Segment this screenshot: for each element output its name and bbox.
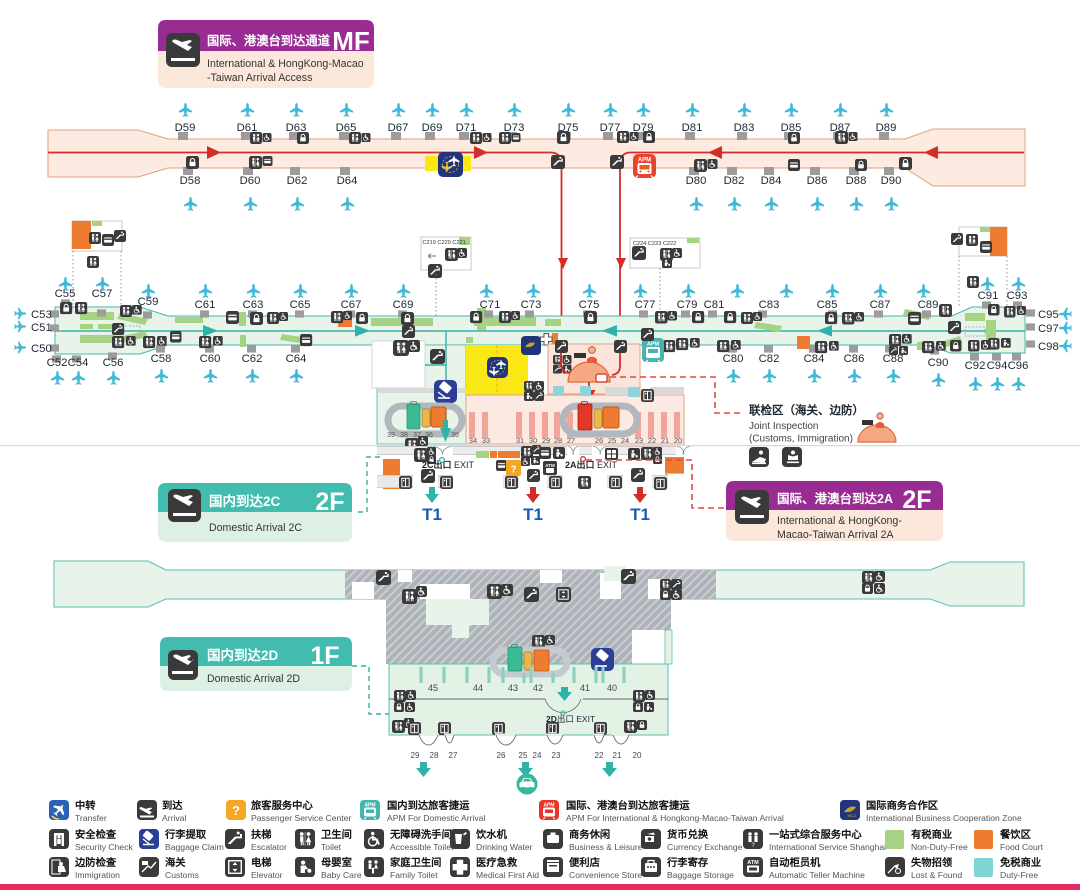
svg-text:C87: C87 — [870, 299, 891, 311]
svg-text:国内到达2C: 国内到达2C — [209, 493, 281, 509]
svg-text:无障碍洗手间: 无障碍洗手间 — [389, 828, 452, 841]
svg-text:Duty-Free: Duty-Free — [1000, 870, 1038, 880]
svg-text:International & HongKong-: International & HongKong- — [777, 515, 902, 527]
svg-text:国际商务合作区: 国际商务合作区 — [866, 799, 939, 812]
svg-text:C85: C85 — [817, 299, 838, 311]
svg-text:扶梯: 扶梯 — [251, 828, 272, 841]
svg-text:Elevator: Elevator — [251, 870, 283, 880]
svg-text:Arrival: Arrival — [162, 813, 186, 823]
svg-text:30: 30 — [529, 436, 537, 445]
svg-text:43: 43 — [508, 683, 518, 693]
svg-text:C84: C84 — [804, 353, 825, 365]
svg-text:D69: D69 — [422, 122, 443, 134]
svg-text:C91: C91 — [978, 290, 999, 302]
svg-text:D88: D88 — [846, 175, 867, 187]
svg-text:MF: MF — [332, 26, 370, 56]
svg-text:C65: C65 — [290, 299, 311, 311]
svg-text:2F: 2F — [315, 488, 344, 516]
svg-text:20: 20 — [633, 751, 642, 760]
svg-text:20: 20 — [674, 436, 682, 445]
svg-text:行李提取: 行李提取 — [164, 828, 207, 841]
svg-text:Joint Inspection: Joint Inspection — [749, 421, 819, 432]
svg-text:IBCZ: IBCZ — [847, 813, 857, 818]
svg-text:?: ? — [510, 465, 516, 476]
svg-text:23: 23 — [635, 436, 643, 445]
svg-text:D90: D90 — [881, 175, 902, 187]
svg-text:D62: D62 — [287, 175, 308, 187]
svg-text:APM For Domestic Arrival: APM For Domestic Arrival — [387, 813, 485, 823]
svg-text:D89: D89 — [876, 122, 897, 134]
svg-text:D80: D80 — [686, 175, 707, 187]
svg-text:Baggage Storage: Baggage Storage — [667, 870, 734, 880]
svg-text:22: 22 — [648, 436, 656, 445]
svg-text:C98: C98 — [1038, 341, 1059, 353]
svg-text:(Customs, Immigration): (Customs, Immigration) — [749, 434, 853, 445]
svg-text:40: 40 — [607, 683, 617, 693]
svg-text:C58: C58 — [151, 353, 172, 365]
svg-text:International Service Shanghai: International Service Shanghai — [769, 842, 886, 852]
svg-text:D67: D67 — [388, 122, 409, 134]
svg-text:29: 29 — [542, 436, 550, 445]
svg-text:C61: C61 — [195, 299, 216, 311]
svg-text:29: 29 — [411, 751, 420, 760]
svg-text:C81: C81 — [704, 299, 725, 311]
svg-text:Macao-Taiwan Arrival 2A: Macao-Taiwan Arrival 2A — [777, 529, 895, 541]
svg-text:26: 26 — [497, 751, 506, 760]
svg-text:C94: C94 — [987, 360, 1008, 372]
svg-text:C67: C67 — [341, 299, 362, 311]
svg-text:C54: C54 — [68, 357, 89, 369]
svg-text:-Taiwan Arrival Access: -Taiwan Arrival Access — [207, 72, 312, 84]
svg-text:ATM: ATM — [747, 860, 759, 866]
svg-text:电梯: 电梯 — [251, 856, 272, 869]
svg-text:C56: C56 — [103, 357, 124, 369]
svg-text:Automatic Teller Machine: Automatic Teller Machine — [769, 870, 865, 880]
svg-text:国际、港澳台到达旅客捷运: 国际、港澳台到达旅客捷运 — [566, 799, 690, 812]
svg-text:联检区（海关、边防）: 联检区（海关、边防） — [749, 403, 864, 417]
svg-text:21: 21 — [661, 436, 669, 445]
svg-text:C89: C89 — [918, 299, 939, 311]
svg-text:27: 27 — [449, 751, 458, 760]
svg-text:C80: C80 — [723, 353, 744, 365]
svg-text:Baggage Claim: Baggage Claim — [165, 842, 224, 852]
svg-text:D82: D82 — [724, 175, 745, 187]
svg-text:31: 31 — [516, 436, 524, 445]
svg-text:C95: C95 — [1038, 309, 1059, 321]
svg-text:C93: C93 — [1007, 290, 1028, 302]
svg-text:35: 35 — [451, 432, 459, 439]
svg-text:到达: 到达 — [162, 799, 183, 812]
svg-text:28: 28 — [554, 436, 562, 445]
svg-text:C73: C73 — [521, 299, 542, 311]
svg-text:Non-Duty-Free: Non-Duty-Free — [911, 842, 968, 852]
svg-text:C60: C60 — [200, 353, 221, 365]
svg-text:C50: C50 — [31, 343, 52, 355]
svg-text:餐饮区: 餐饮区 — [999, 828, 1032, 841]
svg-text:C97: C97 — [1038, 323, 1059, 335]
svg-text:货币兑换: 货币兑换 — [667, 828, 709, 841]
svg-text:C92: C92 — [965, 360, 986, 372]
svg-text:Passenger Service Center: Passenger Service Center — [251, 813, 351, 823]
svg-text:失物招领: 失物招领 — [911, 856, 953, 869]
svg-text:Baby Care: Baby Care — [321, 870, 362, 880]
svg-text:便利店: 便利店 — [569, 856, 600, 869]
svg-text:饮水机: 饮水机 — [475, 828, 508, 841]
svg-text:家庭卫生间: 家庭卫生间 — [390, 856, 441, 869]
svg-text:D77: D77 — [600, 122, 621, 134]
svg-text:2F: 2F — [902, 486, 931, 514]
svg-text:母婴室: 母婴室 — [321, 856, 352, 869]
svg-text:44: 44 — [473, 683, 483, 693]
svg-text:Domestic Arrival 2D: Domestic Arrival 2D — [207, 673, 300, 685]
svg-text:Immigration: Immigration — [75, 870, 120, 880]
svg-text:免税商业: 免税商业 — [1000, 856, 1041, 869]
svg-text:APM For International & Hongko: APM For International & Hongkong-Macao-T… — [566, 813, 784, 823]
svg-text:C79: C79 — [677, 299, 698, 311]
svg-text:C86: C86 — [844, 353, 865, 365]
svg-text:C219 C220 C221: C219 C220 C221 — [423, 240, 466, 246]
svg-text:45: 45 — [428, 683, 438, 693]
svg-text:卫生间: 卫生间 — [321, 828, 352, 841]
svg-text:28: 28 — [430, 751, 439, 760]
svg-text:Currency Exchange: Currency Exchange — [667, 842, 743, 852]
svg-text:国内到达2D: 国内到达2D — [207, 647, 279, 663]
svg-text:C64: C64 — [286, 353, 307, 365]
svg-text:International Business Coopera: International Business Cooperation Zone — [866, 813, 1022, 823]
svg-text:Domestic Arrival 2C: Domestic Arrival 2C — [209, 522, 302, 534]
svg-text:D64: D64 — [337, 175, 358, 187]
svg-text:C51: C51 — [31, 322, 52, 334]
svg-text:C82: C82 — [759, 353, 780, 365]
svg-text:34: 34 — [469, 436, 477, 445]
svg-text:Drinking Water: Drinking Water — [476, 842, 533, 852]
svg-text:安全检查: 安全检查 — [75, 828, 117, 841]
svg-text:C71: C71 — [480, 299, 501, 311]
svg-text:Customs: Customs — [165, 870, 199, 880]
svg-text:Transfer: Transfer — [75, 813, 107, 823]
svg-text:旅客服务中心: 旅客服务中心 — [250, 799, 313, 812]
svg-text:27: 27 — [567, 436, 575, 445]
svg-text:边防检查: 边防检查 — [74, 856, 117, 869]
svg-text:Food Court: Food Court — [1000, 842, 1044, 852]
svg-text:D83: D83 — [734, 122, 755, 134]
svg-text:21: 21 — [613, 751, 622, 760]
svg-text:42: 42 — [533, 683, 543, 693]
svg-text:有税商业: 有税商业 — [911, 828, 952, 841]
svg-text:25: 25 — [519, 751, 528, 760]
svg-text:T1: T1 — [523, 505, 543, 524]
svg-text:2C出口 EXIT: 2C出口 EXIT — [422, 459, 475, 470]
svg-text:39: 39 — [387, 432, 395, 439]
svg-text:Lost & Found: Lost & Found — [911, 870, 962, 880]
svg-text:国际、港澳台到达2A: 国际、港澳台到达2A — [777, 491, 893, 506]
svg-text:C83: C83 — [759, 299, 780, 311]
svg-text:D81: D81 — [682, 122, 703, 134]
svg-text:D60: D60 — [240, 175, 261, 187]
svg-text:行李寄存: 行李寄存 — [666, 856, 709, 869]
svg-text:C77: C77 — [635, 299, 656, 311]
svg-text:商务休闲: 商务休闲 — [569, 828, 610, 841]
svg-text:Escalator: Escalator — [251, 842, 287, 852]
svg-text:33: 33 — [482, 436, 490, 445]
svg-text:?: ? — [232, 803, 240, 818]
svg-text:C75: C75 — [579, 299, 600, 311]
svg-text:C62: C62 — [242, 353, 263, 365]
svg-text:国际、港澳台到达通道: 国际、港澳台到达通道 — [207, 33, 331, 48]
svg-text:C63: C63 — [243, 299, 264, 311]
svg-text:T1: T1 — [630, 505, 650, 524]
svg-text:D59: D59 — [175, 122, 196, 134]
svg-text:自动柜员机: 自动柜员机 — [769, 856, 821, 869]
svg-text:C90: C90 — [928, 357, 949, 369]
svg-text:Toilet: Toilet — [321, 842, 342, 852]
svg-text:24: 24 — [533, 751, 542, 760]
svg-text:APM: APM — [638, 158, 651, 164]
svg-text:Security Check: Security Check — [75, 842, 133, 852]
svg-text:C53: C53 — [31, 309, 52, 321]
svg-text:1F: 1F — [310, 642, 339, 670]
svg-text:International & HongKong-Macao: International & HongKong-Macao — [207, 58, 364, 70]
svg-text:C52: C52 — [47, 357, 68, 369]
svg-text:Medical First Aid: Medical First Aid — [476, 870, 539, 880]
svg-text:Convenience Store: Convenience Store — [569, 870, 642, 880]
svg-text:D84: D84 — [761, 175, 782, 187]
svg-text:D86: D86 — [807, 175, 828, 187]
svg-text:Accessible Toilet: Accessible Toilet — [390, 842, 454, 852]
svg-text:国内到达旅客捷运: 国内到达旅客捷运 — [387, 799, 470, 812]
svg-text:C69: C69 — [393, 299, 414, 311]
svg-text:海关: 海关 — [165, 856, 186, 869]
svg-text:38: 38 — [400, 432, 408, 439]
svg-text:22: 22 — [595, 751, 604, 760]
svg-text:Business & Leisure: Business & Leisure — [569, 842, 643, 852]
svg-text:Family Toilet: Family Toilet — [390, 870, 438, 880]
svg-text:APM: APM — [647, 342, 660, 348]
svg-text:D58: D58 — [180, 175, 201, 187]
svg-text:T1: T1 — [422, 505, 442, 524]
svg-text:41: 41 — [580, 683, 590, 693]
svg-text:C96: C96 — [1008, 360, 1029, 372]
svg-text:23: 23 — [552, 751, 561, 760]
svg-text:医疗急救: 医疗急救 — [476, 856, 518, 869]
svg-text:一站式综合服务中心: 一站式综合服务中心 — [769, 828, 862, 841]
svg-text:中转: 中转 — [75, 799, 96, 812]
svg-text:ATM: ATM — [545, 463, 555, 468]
